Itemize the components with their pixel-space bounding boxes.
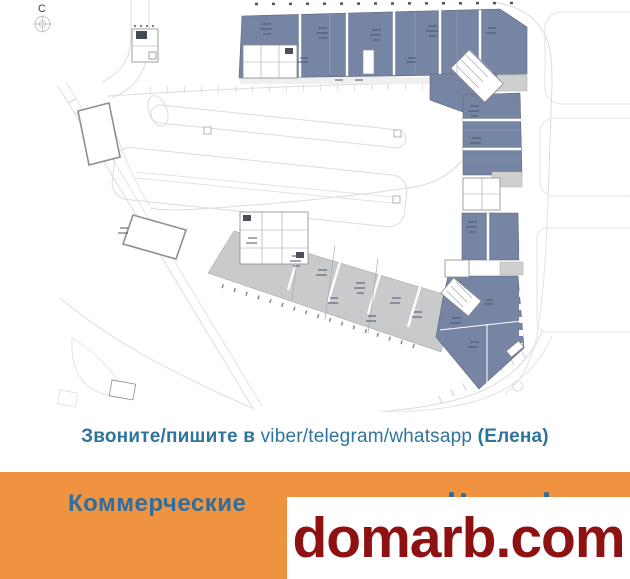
site-plan: С xyxy=(0,0,630,412)
tilted-structure-1 xyxy=(78,103,120,165)
screenshot-root: С Звоните/пишите в viber/telegram/whatsa… xyxy=(0,0,630,579)
building-right-bar-upper xyxy=(463,93,522,175)
site-structures xyxy=(58,26,186,407)
tilted-structure-2 xyxy=(123,215,186,259)
contact-prefix: Звоните/пишите в xyxy=(81,426,255,447)
banner-title: Коммерческие xyxy=(68,490,246,518)
topbar-lobby-rooms xyxy=(243,45,297,78)
watermark-text: domarb.com xyxy=(292,510,624,567)
contact-person: (Елена) xyxy=(478,426,549,447)
utility-building xyxy=(132,26,158,62)
small-structure-4 xyxy=(58,390,78,407)
contact-apps: viber/telegram/whatsapp xyxy=(261,426,473,447)
contact-line: Звоните/пишите в viber/telegram/whatsapp… xyxy=(0,426,630,448)
compass-north-label: С xyxy=(38,3,46,15)
watermark: domarb.com xyxy=(287,497,630,579)
annex-building xyxy=(208,212,456,352)
compass: С xyxy=(34,3,51,33)
building-right-bar-mid xyxy=(462,213,519,260)
small-structure-3 xyxy=(109,380,135,400)
